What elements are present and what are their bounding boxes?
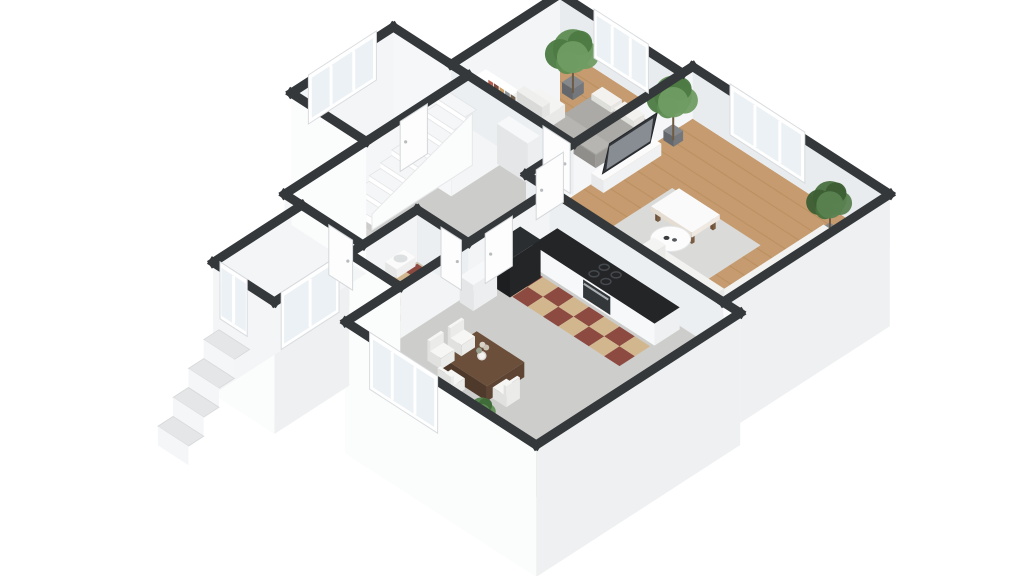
dining-chair-2-back-front [427, 340, 430, 352]
door-storage-room-handle [404, 140, 407, 143]
plant-bedroom-foliage [557, 41, 589, 73]
side-table-round-decor [664, 236, 670, 240]
door-kitchen-handle [489, 252, 492, 255]
dining-chair-1-back-front [448, 326, 451, 338]
wc-sink-bowl [394, 255, 408, 263]
plant-living-tv-foliage [658, 87, 688, 117]
side-table-round-decor [672, 238, 677, 242]
dining-chair-3-back-front [504, 385, 507, 397]
vase-flowers-3 [476, 348, 482, 354]
floorplan-3d-render [0, 0, 1024, 576]
plant-living-corner-foliage [816, 191, 843, 218]
vase-flowers-2 [483, 344, 489, 350]
floorplan-viewport [0, 0, 1024, 576]
front-door-handle [346, 260, 349, 263]
door-wc-handle [456, 260, 459, 263]
door-living-room-handle [540, 189, 543, 192]
